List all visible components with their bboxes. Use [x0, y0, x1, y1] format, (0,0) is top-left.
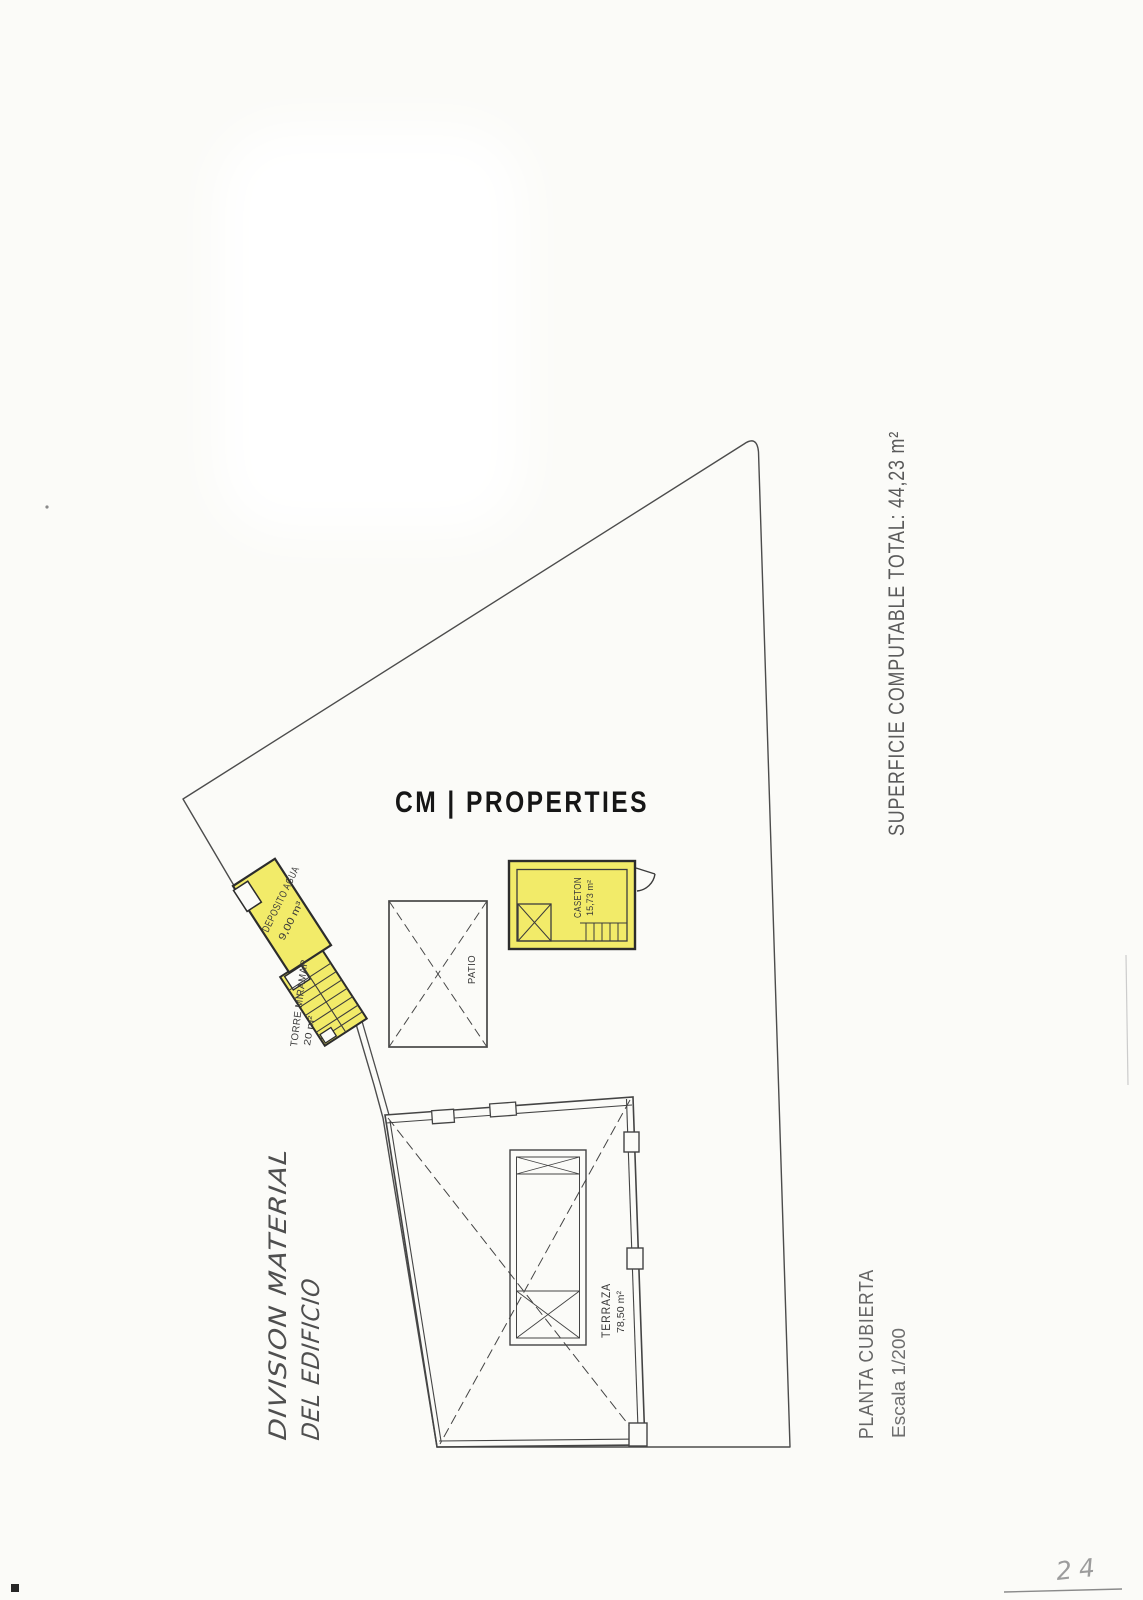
terraza-diagonal-2: [440, 1100, 630, 1444]
scan-artifact-blob: [218, 128, 523, 533]
caseton-door-swing: [636, 868, 655, 891]
terraza-structure: [385, 1097, 647, 1447]
plan-title-text: PLANTA CUBIERTA: [856, 1269, 878, 1439]
terraza-bottom-wall-inner: [439, 1439, 643, 1441]
floor-plan-drawing: TERRAZA 78,50 m² PATIO CASETON 15,73 m² …: [0, 0, 1143, 1600]
deposito-outline: [233, 859, 331, 973]
watermark-text: CM | PROPERTIES: [395, 786, 649, 819]
terraza-center-box-dividers: [517, 1174, 580, 1291]
handwritten-title-line2: DEL EDIFICIO: [297, 1276, 325, 1442]
plan-scale-text: Escala 1/200: [888, 1328, 909, 1438]
scan-mark-square: [11, 1584, 19, 1592]
terraza-label: TERRAZA: [599, 1283, 613, 1338]
caseton-label: CASETON: [573, 877, 584, 918]
terraza-diagonal-1: [388, 1118, 642, 1442]
patio-label: PATIO: [466, 955, 478, 984]
terraza-top-notch-2: [490, 1102, 517, 1117]
scan-mark-dot: [45, 505, 48, 508]
terraza-pillar-3: [629, 1423, 647, 1446]
terraza-left-wall-inner: [390, 1121, 441, 1441]
terraza-center-box-x-top: [517, 1157, 580, 1174]
caseton-area-label: 15,73 m²: [585, 880, 595, 916]
bottom-scan-line: [1004, 1589, 1122, 1592]
terraza-center-box-x-bottom: [517, 1291, 580, 1338]
scanned-plan-page: TERRAZA 78,50 m² PATIO CASETON 15,73 m² …: [0, 0, 1143, 1600]
handwritten-title-line1: DIVISION MATERIAL: [264, 1146, 292, 1442]
terraza-pillar-2: [627, 1248, 643, 1269]
scan-edge-artifact: [1126, 955, 1128, 1085]
caseton-outline: [509, 861, 635, 949]
terraza-area-label: 78,50 m²: [616, 1290, 627, 1333]
summary-note-text: SUPERFICIE COMPUTABLE TOTAL: 44,23 m²: [884, 431, 909, 836]
terraza-pillar-1: [624, 1132, 639, 1152]
torre-area-label: 20 m²: [302, 1015, 318, 1046]
terraza-top-notch-1: [432, 1109, 455, 1124]
page-number-handwritten: 24: [1055, 1552, 1104, 1586]
